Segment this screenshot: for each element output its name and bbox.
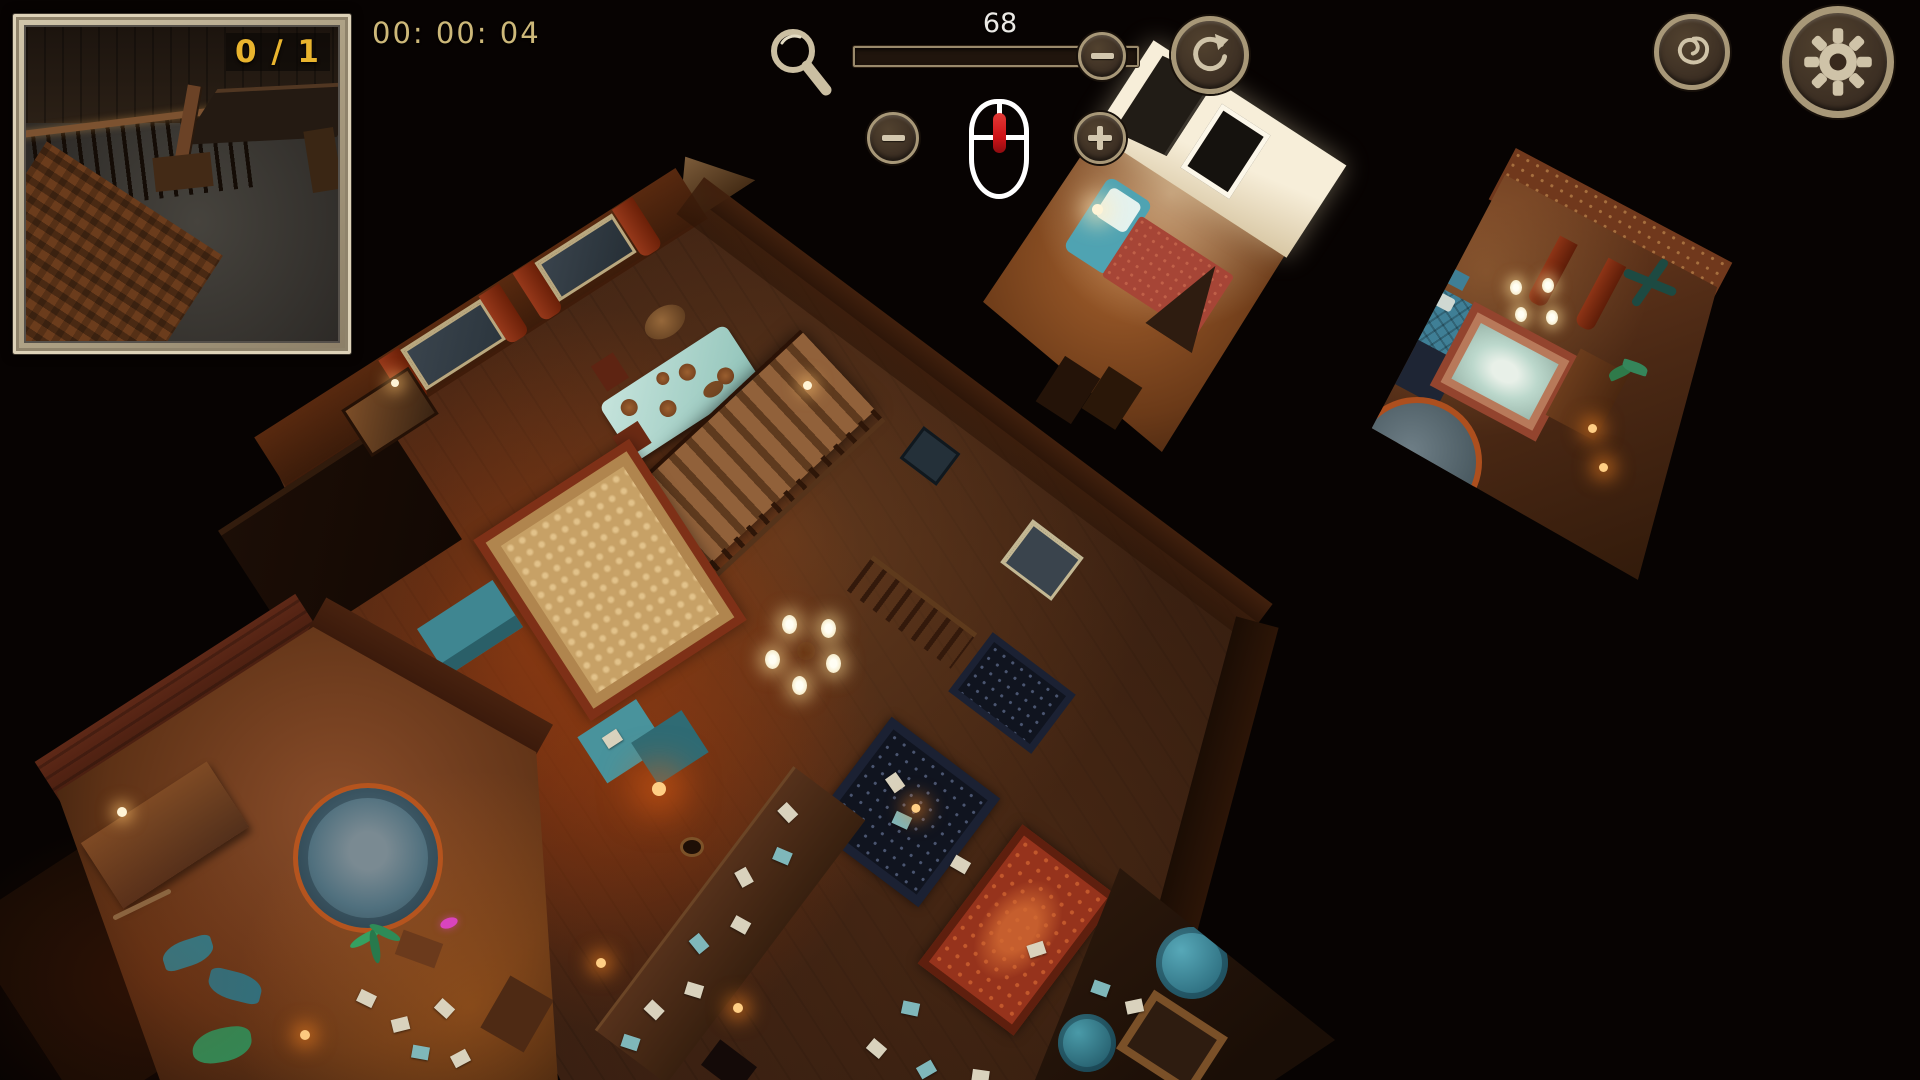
zoom-slider-handle[interactable] bbox=[1078, 32, 1126, 80]
ambient-glow bbox=[0, 820, 360, 1080]
settings-button[interactable] bbox=[1782, 6, 1894, 118]
doorway bbox=[1181, 104, 1271, 199]
curtain bbox=[1526, 236, 1577, 309]
plus-icon bbox=[1088, 126, 1112, 150]
zoom-out-button[interactable] bbox=[867, 112, 919, 164]
teal-bench bbox=[1432, 261, 1470, 291]
rug-center bbox=[1451, 323, 1558, 420]
potted-plant bbox=[1608, 358, 1648, 388]
mouse-scroll-wheel-icon bbox=[969, 99, 1029, 199]
candle-chandelier bbox=[760, 610, 860, 700]
bedroom-round-rug bbox=[1352, 397, 1482, 527]
preview-chair-seat bbox=[152, 152, 213, 192]
game-screen: 0 / 1 00: 00: 04 68 bbox=[0, 0, 1920, 1080]
pillow bbox=[1407, 278, 1433, 301]
desk-candle bbox=[733, 1003, 743, 1013]
wall-lamp bbox=[391, 379, 399, 387]
clay-pot bbox=[680, 837, 704, 857]
stove-glow bbox=[652, 782, 666, 796]
dresser-candle bbox=[1588, 424, 1597, 433]
mouse-scroll-wheel bbox=[993, 113, 1006, 153]
minus-icon bbox=[1091, 53, 1114, 59]
zoom-value: 68 bbox=[952, 8, 1048, 39]
ceiling-fan bbox=[1622, 264, 1678, 298]
minus-icon bbox=[882, 135, 905, 141]
book-pile bbox=[395, 930, 443, 969]
timer: 00: 00: 04 bbox=[372, 16, 572, 50]
magnifier-icon bbox=[765, 25, 845, 105]
reset-view-button[interactable] bbox=[1171, 16, 1249, 94]
tufted-chair bbox=[1156, 927, 1228, 999]
wooden-chair bbox=[480, 976, 553, 1053]
room-bedroom[interactable] bbox=[1360, 140, 1720, 610]
pillow bbox=[1430, 290, 1456, 313]
plate bbox=[654, 370, 672, 388]
desk-lamp bbox=[117, 807, 127, 817]
plate bbox=[656, 397, 680, 421]
objective-preview[interactable]: 0 / 1 bbox=[12, 13, 352, 355]
desk-candle bbox=[596, 958, 606, 968]
stair-lamp bbox=[803, 381, 812, 390]
dresser-candle bbox=[1599, 463, 1608, 472]
objective-preview-image: 0 / 1 bbox=[24, 25, 340, 343]
objective-counter: 0 / 1 bbox=[226, 33, 330, 71]
tufted-chair bbox=[1058, 1014, 1116, 1072]
pink-flower bbox=[439, 915, 459, 931]
gear-icon bbox=[1800, 24, 1876, 100]
spiral-hint-icon bbox=[1667, 27, 1717, 77]
bathroom-lamp bbox=[1092, 204, 1103, 215]
hint-button[interactable] bbox=[1654, 14, 1730, 90]
rotate-ccw-icon bbox=[1184, 29, 1236, 81]
chandelier-hub bbox=[797, 642, 815, 660]
zoom-in-button[interactable] bbox=[1074, 112, 1126, 164]
curtain bbox=[1574, 258, 1626, 333]
plate bbox=[676, 360, 700, 384]
plate bbox=[617, 396, 641, 420]
